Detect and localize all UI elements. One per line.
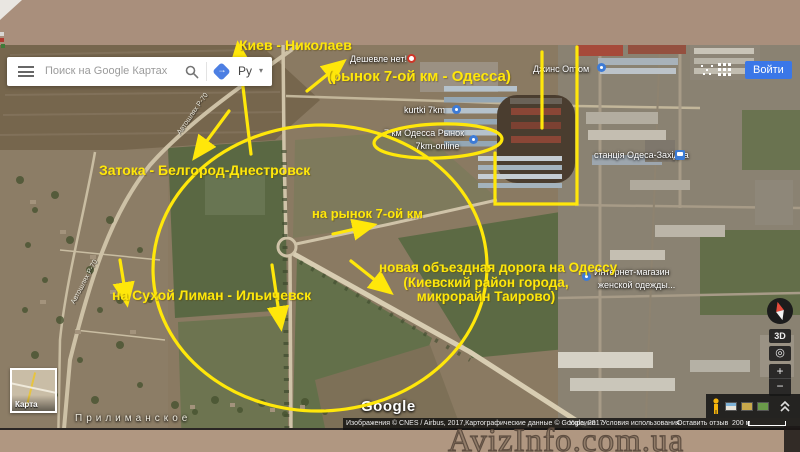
imagery-thumb[interactable]	[741, 402, 753, 411]
top-crop-strip	[0, 0, 800, 45]
directions-icon[interactable]: →	[212, 62, 230, 80]
poi-label-dzhins[interactable]: Джинс Оптом	[533, 64, 589, 74]
annotation-novaya-line3: микрорайн Таирово)	[379, 290, 593, 305]
poi-label-kurtki[interactable]: kurtki 7km	[404, 105, 445, 115]
pegman-icon[interactable]	[711, 398, 721, 415]
corner-dot	[1, 44, 5, 48]
annotation-na-rynok: на рынок 7-ой км	[312, 206, 423, 221]
my-location-button[interactable]: ◎	[769, 346, 791, 361]
annotation-novaya-line1: новая объездная дорога на Одессу	[379, 261, 593, 276]
search-input[interactable]	[43, 61, 181, 81]
annotation-zatoka: Затока - Белгород-Днестровск	[99, 162, 310, 178]
imagery-thumb[interactable]	[757, 402, 769, 411]
imagery-thumb[interactable]	[725, 402, 737, 411]
screenshot-root: Дешевле нет! kurtki 7km 7 км Одесса Рыно…	[0, 0, 800, 452]
search-card: → Ру ▾	[7, 57, 272, 86]
corner-dot	[0, 32, 4, 36]
scale-bar	[748, 421, 786, 426]
zoom-control: + −	[769, 364, 791, 396]
town-label: Прилиманское	[75, 413, 191, 424]
google-logo: Google	[361, 398, 416, 415]
zoom-in-button[interactable]: +	[769, 364, 791, 379]
annotation-novaya: новая объездная дорога на Одессу (Киевск…	[379, 261, 593, 305]
poi-label-deshevle[interactable]: Дешевле нет!	[350, 54, 407, 64]
chevron-down-icon[interactable]: ▾	[259, 66, 263, 75]
attribution-feedback[interactable]: Оставить отзыв	[677, 420, 728, 427]
poi-label-internet-2[interactable]: женской одежды...	[598, 280, 675, 290]
map-type-label: Карта	[15, 400, 38, 409]
corner-dark-strip	[784, 426, 800, 452]
blue-pin-icon[interactable]	[597, 63, 606, 72]
blue-pin-icon[interactable]	[452, 105, 461, 114]
menu-icon[interactable]	[18, 66, 34, 80]
signin-button[interactable]: Войти	[745, 61, 792, 79]
red-pin-icon[interactable]	[407, 54, 416, 63]
corner-dot	[0, 38, 4, 42]
apps-grid-icon[interactable]	[718, 63, 731, 76]
blue-pin-icon[interactable]	[469, 135, 478, 144]
search-icon[interactable]	[185, 65, 199, 79]
zoom-out-button[interactable]: −	[769, 379, 791, 394]
train-station-icon[interactable]	[675, 150, 685, 160]
annotation-kiev: Киев - Николаев	[239, 37, 352, 53]
collapse-chevron-icon[interactable]	[779, 399, 791, 413]
divider	[206, 62, 207, 81]
poi-label-rynok-1[interactable]: 7 км Одесса Рынок	[384, 128, 464, 138]
map-type-card[interactable]: Карта	[10, 368, 57, 413]
watermark: AvizInfo.com.ua	[448, 423, 684, 452]
thumb-road	[10, 382, 57, 396]
3d-button[interactable]: 3D	[769, 329, 791, 343]
annotation-rynok-top: (рынок 7-ой км - Одесса)	[327, 68, 511, 85]
annotation-suhoj: на Сухой Лиман - Ильичевск	[112, 287, 311, 303]
compass-icon[interactable]	[766, 297, 794, 325]
imagery-panel	[706, 394, 800, 418]
poi-label-rynok-2[interactable]: - 7km-online	[410, 141, 460, 151]
annotation-novaya-line2: (Киевский район города,	[379, 276, 593, 291]
language-button[interactable]: Ру	[238, 64, 252, 78]
